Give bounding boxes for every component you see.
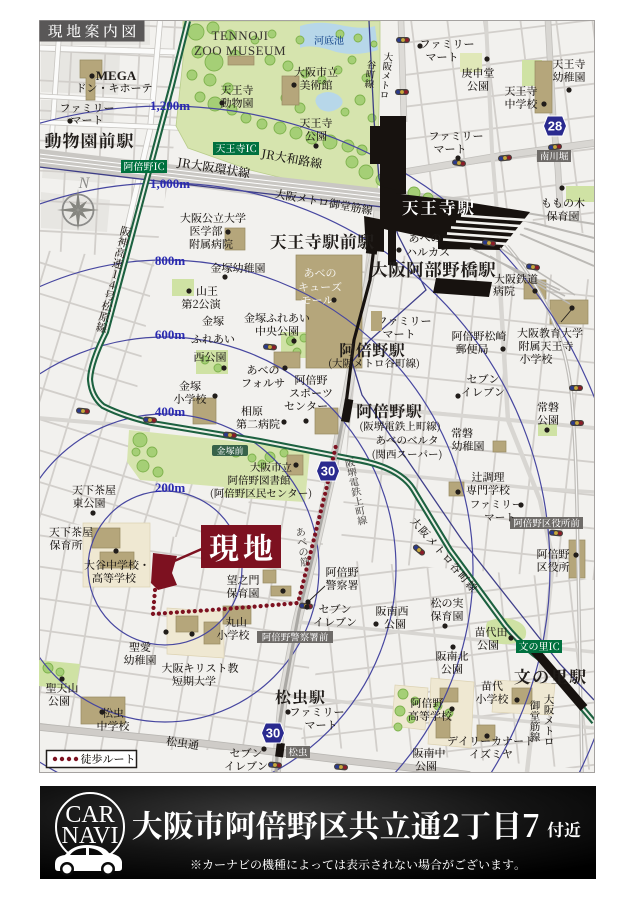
svg-text:200m: 200m (155, 480, 186, 495)
svg-text:600m: 600m (155, 327, 186, 342)
svg-text:800m: 800m (155, 253, 186, 268)
svg-text:1,000m: 1,000m (150, 176, 190, 191)
svg-text:400m: 400m (155, 404, 186, 419)
svg-text:30: 30 (321, 464, 335, 479)
svg-text:N: N (78, 175, 91, 192)
svg-text:MEGA: MEGA (96, 68, 137, 83)
svg-text:CARNAVI: CARNAVI (62, 802, 119, 849)
svg-text:28: 28 (548, 119, 562, 134)
svg-text:1,200m: 1,200m (150, 98, 190, 113)
svg-text:30: 30 (266, 726, 280, 741)
